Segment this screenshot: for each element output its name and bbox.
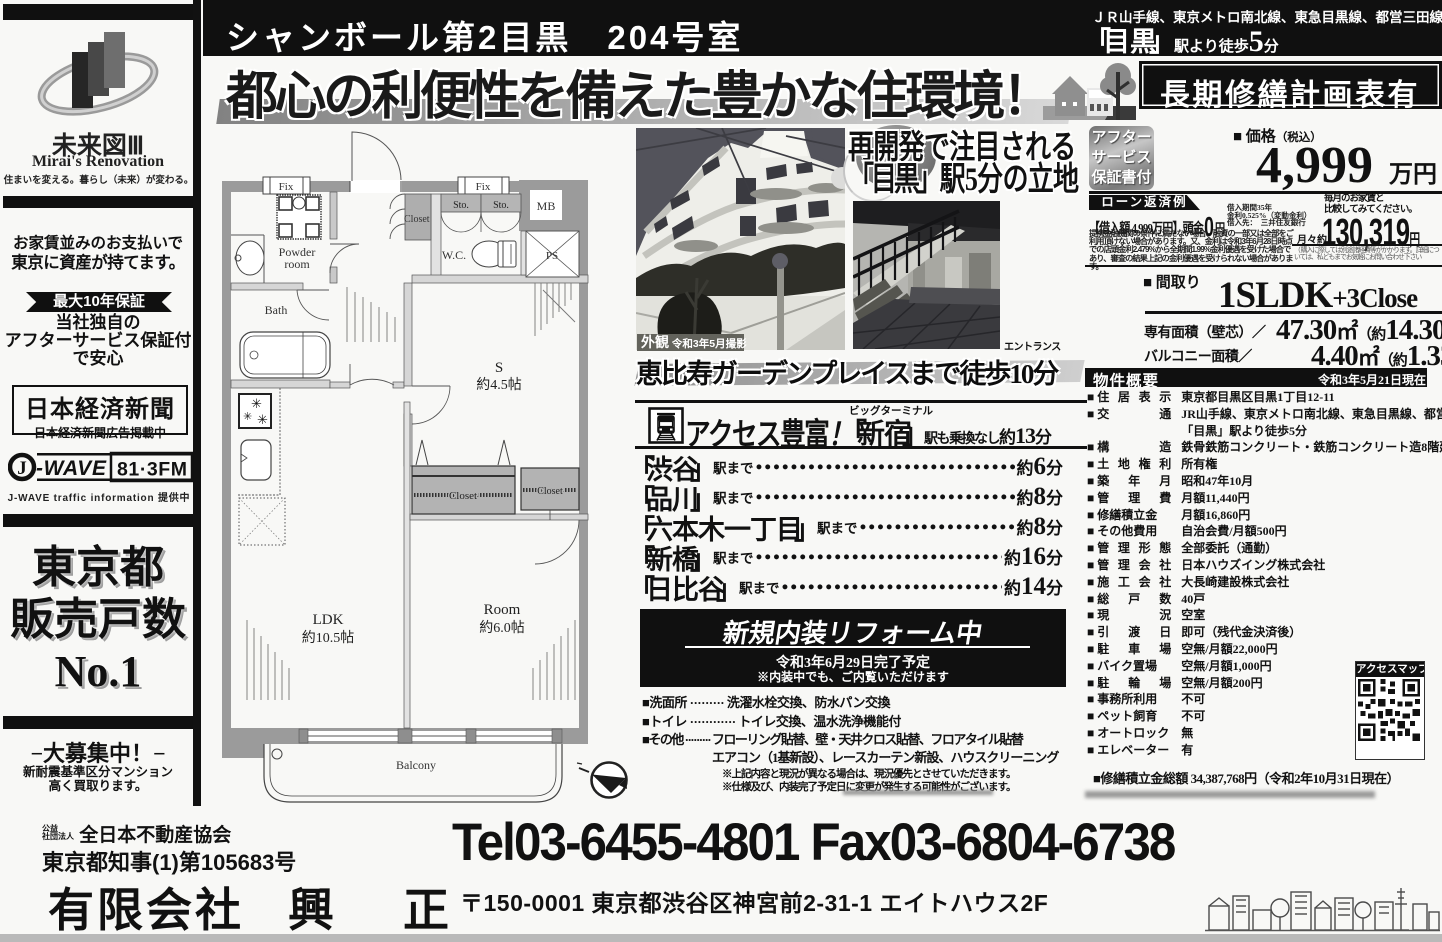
svg-text:Sto.: Sto. (453, 200, 469, 211)
svg-text:約6.0帖: 約6.0帖 (479, 620, 525, 636)
svg-text:Balcony: Balcony (396, 758, 436, 772)
svg-text:MB: MB (537, 199, 556, 213)
svg-text:PS: PS (546, 250, 558, 262)
svg-text:Fix: Fix (279, 181, 294, 193)
svg-text:-WAVE: -WAVE (36, 457, 107, 480)
svg-text:✳: ✳ (251, 396, 262, 411)
svg-text:J: J (17, 458, 27, 479)
svg-text:Bath: Bath (265, 303, 288, 317)
svg-text:Room: Room (484, 602, 521, 618)
svg-text:W.C.: W.C. (442, 248, 466, 262)
svg-text:LDK: LDK (313, 612, 344, 628)
svg-text:約4.5帖: 約4.5帖 (476, 377, 522, 393)
svg-text:✳: ✳ (257, 412, 268, 427)
svg-text:S: S (495, 360, 503, 376)
svg-text:81·3FM: 81·3FM (117, 459, 187, 481)
svg-text:Closet: Closet (449, 490, 477, 502)
svg-text:room: room (284, 257, 310, 271)
svg-text:約10.5帖: 約10.5帖 (302, 630, 355, 646)
svg-text:Closet: Closet (537, 486, 563, 497)
svg-text:Sto.: Sto. (493, 200, 509, 211)
svg-text:Closet: Closet (404, 214, 430, 225)
svg-text:✳: ✳ (243, 411, 252, 423)
svg-text:Fix: Fix (476, 181, 491, 193)
